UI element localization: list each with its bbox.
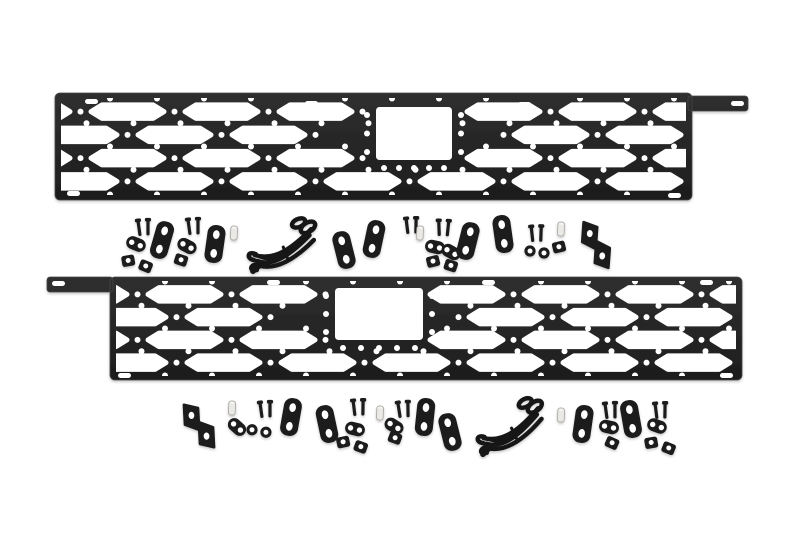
hw-strap-bracket: [491, 214, 514, 254]
hw-spacer: [376, 406, 383, 420]
hw-strap-bracket: [571, 404, 594, 444]
molle-panel-top-stake-pocket-cutout: [376, 107, 452, 160]
hw-wire-harness: [246, 216, 320, 272]
hw-z-bracket: [184, 403, 214, 448]
hw-nut-plate: [645, 416, 668, 435]
hw-washer-pair: [246, 424, 272, 438]
hw-strap-bracket: [331, 229, 358, 270]
hw-bolt-pair: [602, 400, 620, 419]
hw-spacer: [416, 226, 424, 240]
hw-spacer: [557, 408, 564, 422]
hw-clip-nut-pair: [642, 434, 678, 456]
hw-nut-plate: [124, 234, 147, 254]
hw-nut-plate: [225, 415, 249, 438]
hw-bolt-pair: [528, 224, 545, 242]
hw-clip-nut-pair: [334, 434, 369, 455]
hw-strap-bracket: [619, 399, 643, 440]
hw-wire-harness: [473, 394, 550, 454]
hw-bolt-pair: [135, 217, 153, 236]
hardware-kit-top: [119, 214, 611, 274]
hw-nut-plate: [598, 419, 620, 436]
hw-strap-bracket: [414, 397, 436, 437]
hw-nut-plate: [344, 420, 367, 437]
hw-clip-nut: [551, 240, 566, 254]
hw-strap-bracket: [361, 219, 387, 260]
hw-spacer: [230, 226, 238, 240]
hw-bolt-pair: [652, 401, 669, 420]
molle-panel-bottom-stake-pocket-cutout: [335, 288, 423, 340]
hw-spacer: [228, 401, 235, 415]
hw-strap-bracket: [148, 219, 176, 260]
product-photo: [0, 0, 800, 533]
molle-panel-bottom: [47, 277, 785, 380]
hw-nut-plate: [175, 236, 199, 257]
hw-strap-bracket: [279, 397, 303, 438]
hw-spacer: [557, 222, 565, 236]
hw-bolt-pair: [435, 218, 452, 236]
hw-bolt-pair: [185, 216, 203, 235]
hw-strap-bracket: [437, 411, 464, 452]
hw-strap-bracket: [203, 224, 226, 264]
hw-clip-nut: [173, 253, 189, 267]
hardware-kit-bottom: [184, 394, 678, 456]
molle-panel-top: [0, 93, 748, 200]
hw-z-bracket: [580, 222, 611, 268]
hw-washer-pair: [524, 245, 549, 258]
hw-bolt-pair: [350, 398, 367, 417]
hw-bolt-pair: [394, 399, 412, 418]
hw-strap-bracket: [314, 404, 340, 445]
hw-bolt-pair: [257, 399, 275, 418]
hw-clip-nut-pair: [119, 252, 155, 274]
hw-clip-nut: [604, 435, 620, 450]
product-photo-canvas: [0, 0, 800, 533]
hw-strap-bracket: [455, 220, 482, 261]
